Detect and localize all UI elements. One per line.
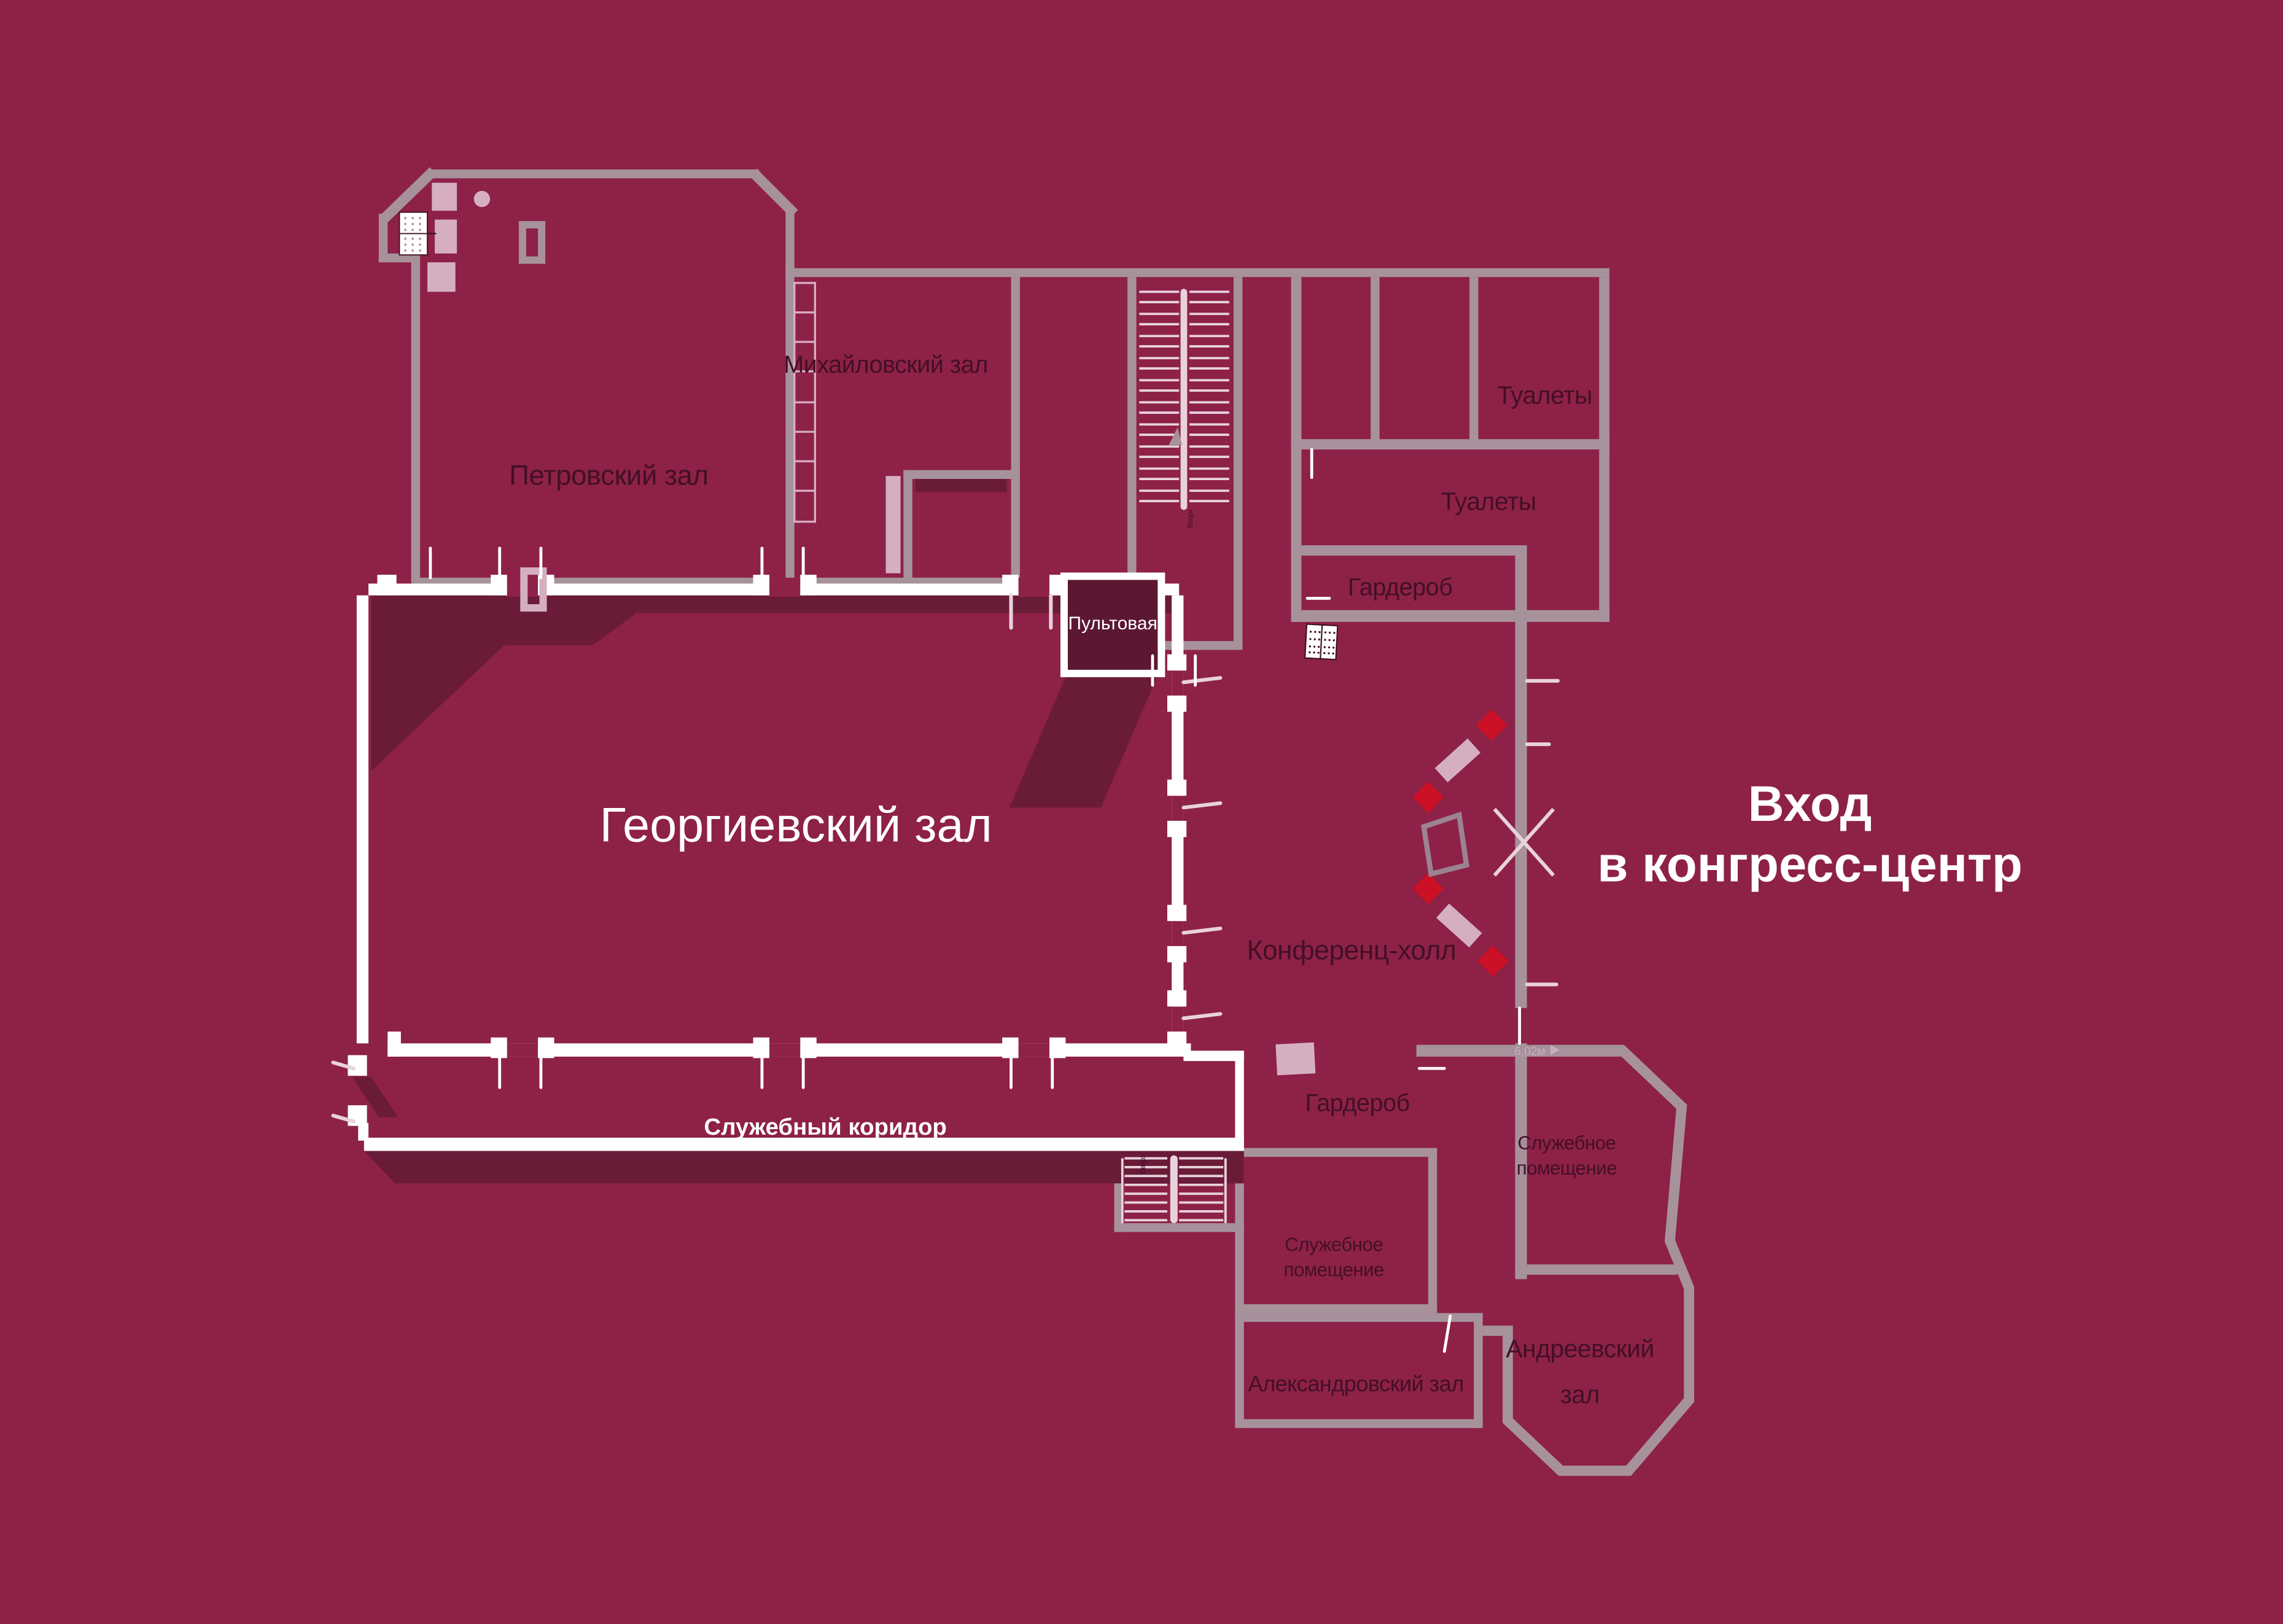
label-georgievsky: Георгиевский зал [599,798,992,852]
wall-petrovsky-right-lower [785,273,794,582]
wall-petrovsky-right-upper [785,208,794,277]
label-control-room: Пультовая [1068,613,1157,634]
table-icon [435,220,457,254]
floor-plan-page: Вверх Вверх [0,0,2283,1624]
stair-rail [1170,1156,1178,1223]
door-gap [1172,796,1183,821]
hall-left-wall [357,596,368,1044]
stairs-up-label-top: Вверх [1186,509,1194,529]
label-service-center-1: Служебное [1285,1234,1383,1256]
label-entrance-line2: в конгресс-центр [1597,836,2022,892]
door-gap [769,1043,800,1057]
door-gap [1172,921,1183,946]
corridor-right-stub [1183,1051,1243,1061]
wall-right-outer [1599,277,1609,622]
floor-plan-svg: Вверх Вверх [0,0,2283,1624]
label-mikhailovsky: Михайловский зал [784,351,988,378]
wall-top-outer [785,268,1609,277]
label-toilets-upper: Туалеты [1497,381,1592,410]
label-service-center-2: помещение [1284,1259,1384,1281]
wall-center-room-top [1244,1148,1437,1157]
label-door-width: 6,02м [1514,1046,1546,1059]
label-service-corridor: Служебный коридор [704,1114,946,1140]
turnstile-icon [1305,624,1337,659]
corridor-right-wall [1235,1051,1243,1151]
wall-toilets-divider2 [1469,277,1478,448]
wall-alexandrovsky-left [1235,1313,1243,1428]
label-toilets-lower: Туалеты [1441,487,1536,515]
wall-center-room-bottom [1235,1304,1437,1313]
label-cloakroom-lower: Гардероб [1305,1090,1409,1117]
wall-petrovsky-top [427,169,759,178]
screen-icon [886,476,901,573]
stairs-up-label-bottom: Вверх [1138,1154,1147,1174]
door-gap [769,578,800,597]
wall-inner-room-left [903,470,912,581]
label-service-right-2: помещение [1517,1157,1617,1179]
label-conference-hall: Конференц-холл [1247,936,1457,966]
corridor-shadow [364,1151,1244,1184]
wall-block-bottom [1291,610,1609,622]
stair-rail [1181,289,1188,510]
door-gap [1172,1006,1183,1032]
door-gap [1019,1043,1049,1057]
wall-alexandrovsky-bottom [1235,1419,1482,1428]
door-gap [507,1043,538,1057]
wall-toilets-middle [1291,439,1609,449]
round-table-icon [474,191,490,207]
table-icon [427,262,456,292]
wall-foyer-bottom [1417,1045,1515,1057]
door-gap [1019,578,1049,597]
corridor-left-pillar [348,1105,367,1126]
wall-mikhailovsky-right [1011,277,1020,580]
wall-center-room-right [1428,1148,1437,1313]
background [0,0,2283,1624]
door-gap [1172,670,1183,696]
wall-inner-room-top [903,470,1020,479]
label-cloakroom-upper: Гардероб [1348,574,1452,601]
label-andreevsky-2: зал [1560,1380,1600,1408]
wall-alexandrovsky-top [1235,1313,1482,1322]
label-petrovsky: Петровский зал [509,460,708,491]
label-alexandrovsky: Александровский зал [1248,1371,1464,1396]
label-service-right-1: Служебное [1517,1132,1616,1154]
label-andreevsky-1: Андреевский [1506,1335,1654,1363]
table-icon [432,183,457,211]
wall-stairs2-bottom [1114,1223,1244,1232]
wall-cloakroom-top [1291,545,1515,556]
wall-toilets-divider1 [1371,277,1379,448]
inner-room-shadow [916,479,1007,492]
wall-stairwell-right [1234,277,1242,650]
wall-petrovsky-left-lower [411,254,420,581]
label-entrance-line1: Вход [1748,776,1872,832]
cloakroom-counter [1275,1043,1315,1076]
wall-alexandrovsky-right [1474,1313,1482,1428]
wall-andreevsky-top [1515,1264,1677,1275]
